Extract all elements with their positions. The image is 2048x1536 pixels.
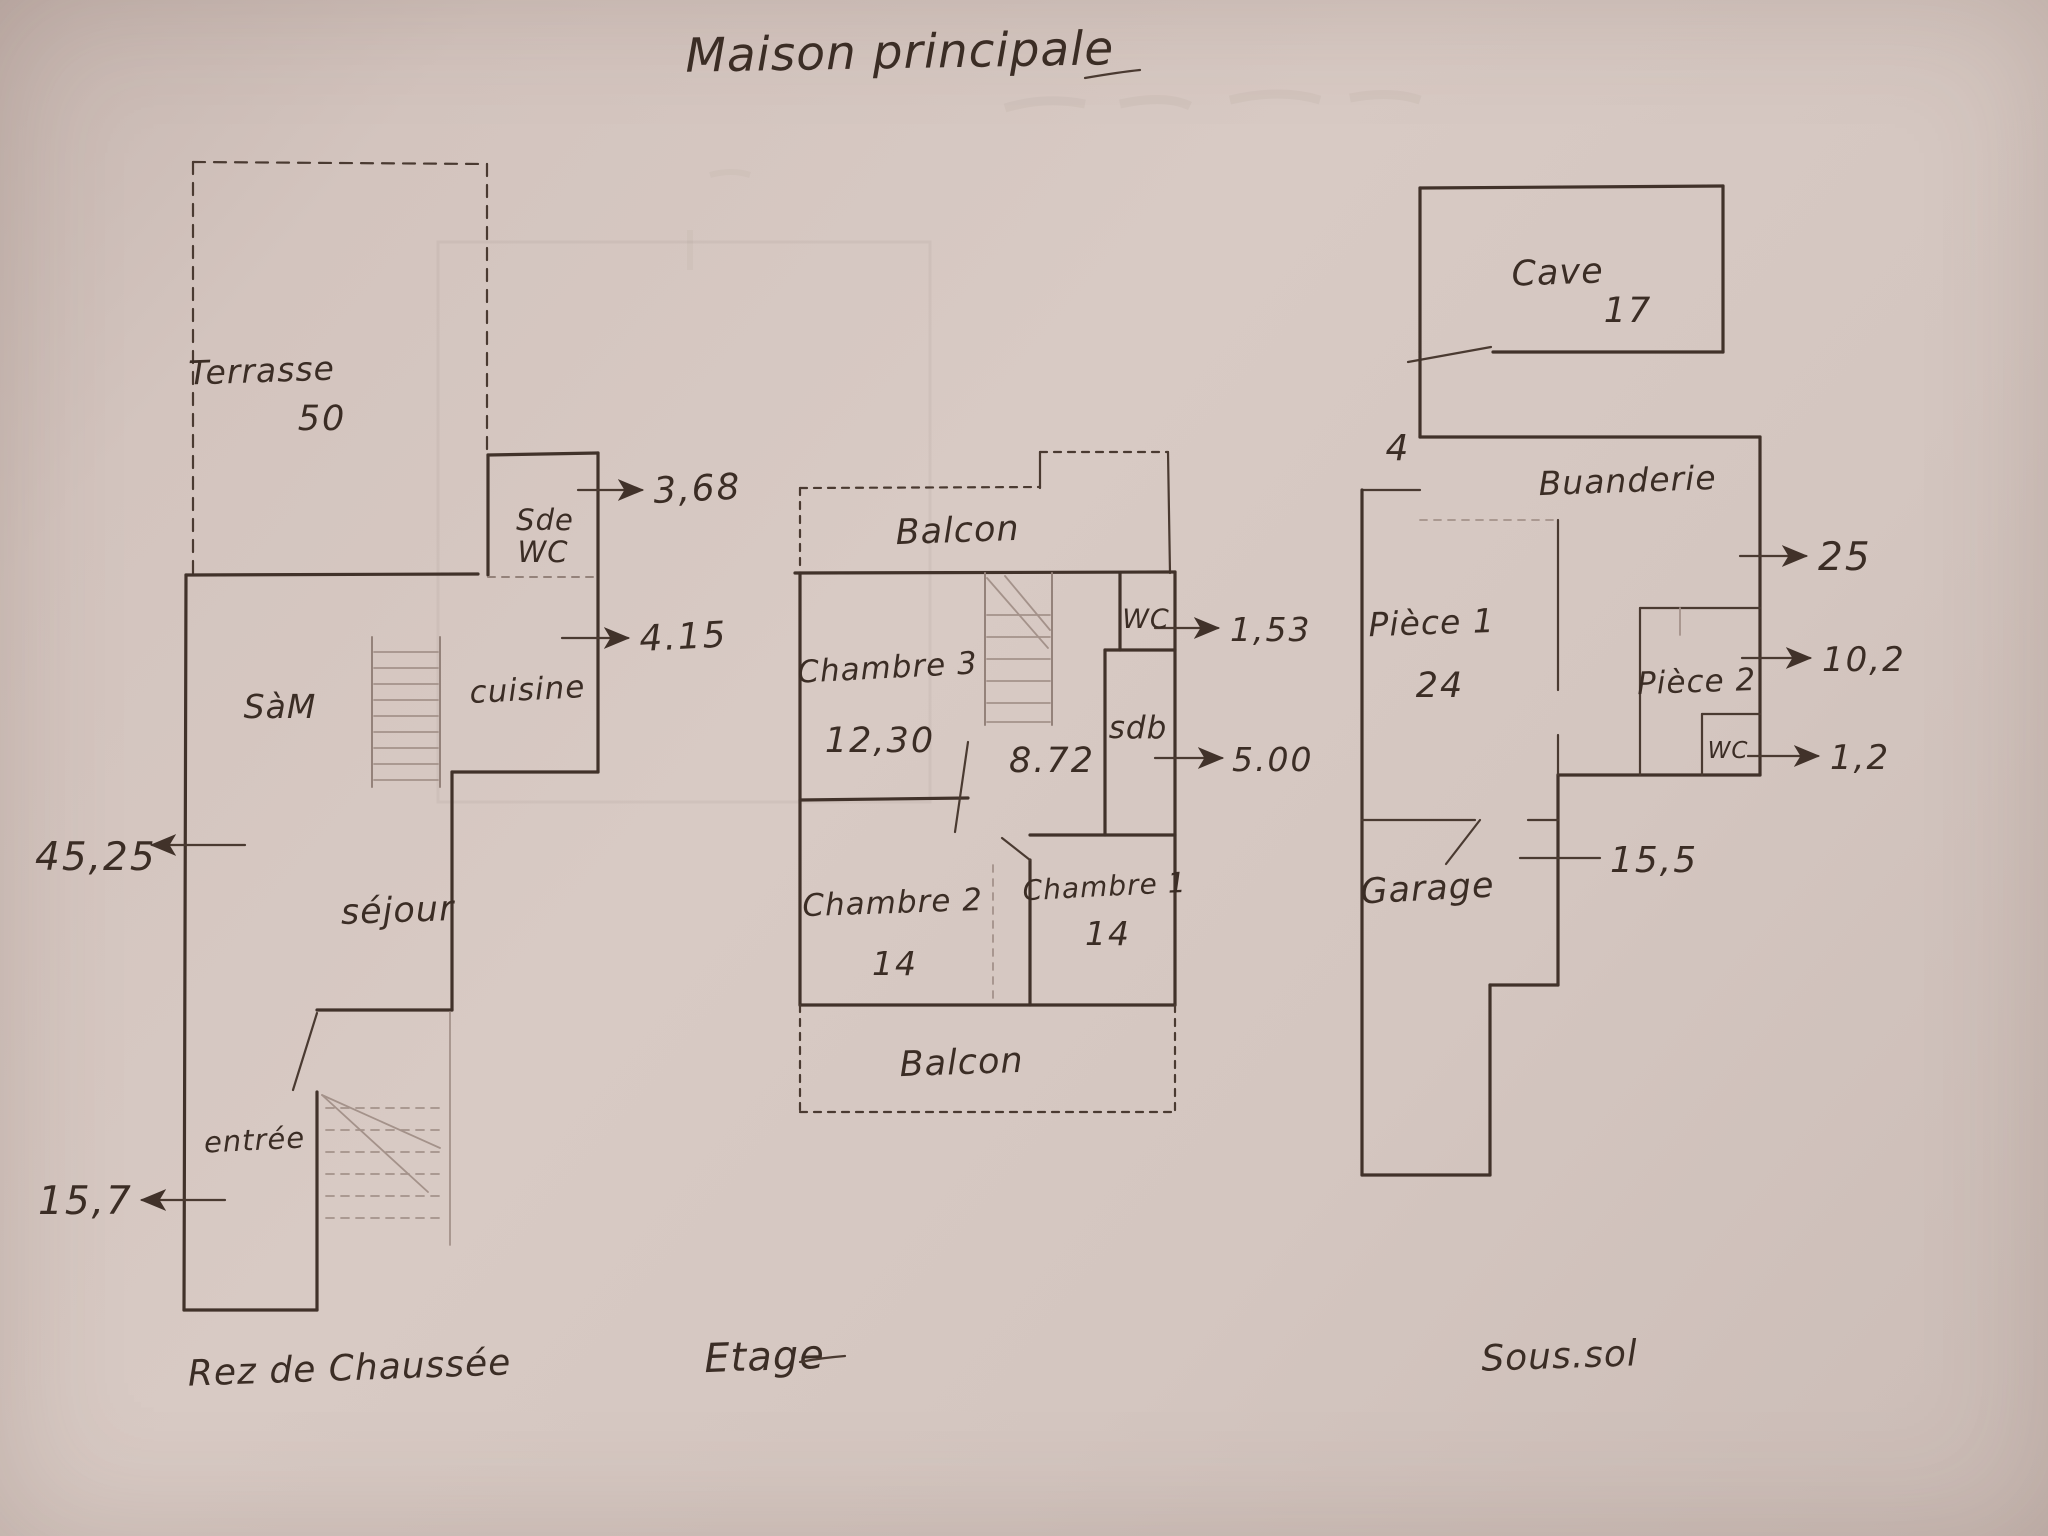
upper-floor-label: Etage — [704, 1332, 826, 1382]
sde-wc-label: WC — [518, 535, 569, 569]
terrasse-label: Terrasse — [188, 348, 336, 392]
basement-arrows — [1520, 556, 1818, 858]
wc-area: 1,53 — [1230, 610, 1311, 649]
floorplan-drawing: Maison principale — [0, 0, 2048, 1536]
sejour-label: séjour — [340, 889, 456, 933]
chambre3-area: 12,30 — [825, 721, 935, 761]
piece2-area: 10,2 — [1822, 640, 1906, 680]
sejour-area: 45,25 — [35, 835, 157, 880]
cuisine-area: 4.15 — [638, 614, 728, 660]
upper-floor-plan: Balcon Chambre 3 12,30 WC 1,53 sdb 5.00 … — [704, 452, 1314, 1382]
cave-area: 17 — [1604, 291, 1653, 331]
cave-label: Cave — [1511, 251, 1604, 294]
page-title: Maison principale — [685, 21, 1115, 83]
wc-label: WC — [1122, 604, 1170, 635]
escalier-area: 4 — [1386, 428, 1411, 469]
entree-area: 15,7 — [38, 1179, 133, 1224]
upper-floor-pencil-details — [955, 573, 1052, 1000]
garage-label: Garage — [1359, 866, 1495, 913]
chambre2-label: Chambre 2 — [802, 882, 984, 924]
sdb-area: 5.00 — [1232, 740, 1313, 779]
sde-label: Sde — [516, 503, 574, 537]
basement-wc-label: WC — [1708, 738, 1749, 764]
chambre1-area: 14 — [1085, 914, 1131, 953]
chambre3-label: Chambre 3 — [796, 645, 978, 690]
ground-floor-plan: Terrasse 50 Sde WC 3,68 4.15 cuisine SàM… — [35, 162, 743, 1395]
buanderie-label: Buanderie — [1538, 458, 1717, 503]
ground-floor-arrows — [142, 490, 642, 1200]
buanderie-area: 25 — [1818, 535, 1872, 580]
floorplan-sketch-page: Maison principale — [0, 0, 2048, 1536]
balcon-bottom-label: Balcon — [899, 1041, 1024, 1085]
piece2-label: Pièce 2 — [1637, 662, 1757, 702]
ground-floor-label: Rez de Chaussée — [187, 1342, 512, 1394]
cuisine-label: cuisine — [469, 669, 587, 711]
chambre1-label: Chambre 1 — [1022, 866, 1187, 908]
terrasse-area: 50 — [298, 399, 347, 439]
balcon-top-label: Balcon — [895, 509, 1020, 553]
ground-floor-walls — [184, 453, 598, 1310]
basement-wc-area: 1,2 — [1830, 738, 1890, 778]
balcon-right-edge — [1168, 452, 1170, 573]
sde-wc-area: 3,68 — [652, 466, 742, 512]
piece1-area: 24 — [1416, 666, 1465, 706]
sdb-label: sdb — [1109, 710, 1168, 746]
salle-a-manger-label: SàM — [244, 687, 317, 726]
chambre2-area: 14 — [872, 944, 918, 983]
palier-area: 8.72 — [1009, 741, 1095, 781]
entree-label: entrée — [203, 1120, 306, 1159]
piece1-label: Pièce 1 — [1368, 601, 1496, 644]
garage-measure: 15,5 — [1610, 840, 1698, 881]
basement-label: Sous.sol — [1481, 1333, 1639, 1379]
basement-plan: Cave 17 4 Buanderie 25 Pièce 1 24 Pièce … — [1359, 186, 1905, 1380]
